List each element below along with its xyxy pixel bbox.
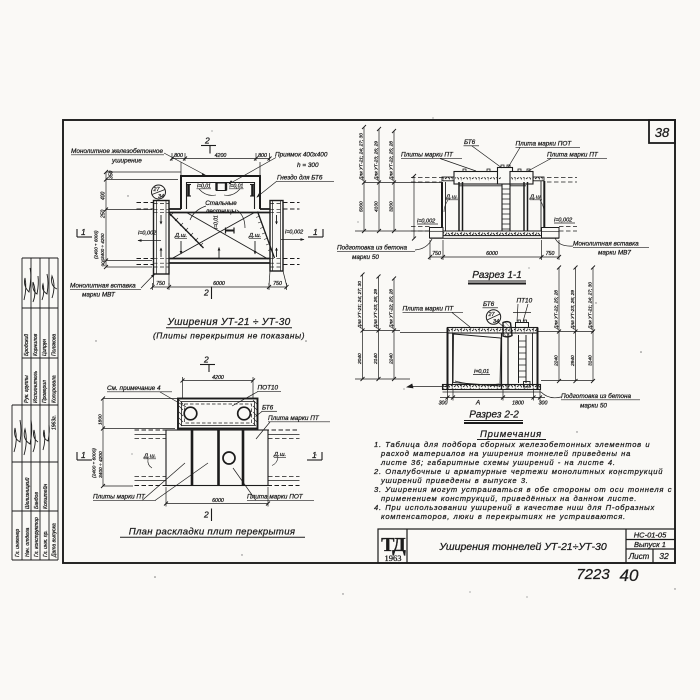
svg-text:6000: 6000 — [212, 498, 224, 504]
svg-text:Для УТ-21; 24; 27; 30: Для УТ-21; 24; 27; 30 — [359, 133, 365, 181]
svg-text:(2400 ÷ 6000): (2400 ÷ 6000) — [92, 448, 98, 478]
svg-text:Для УТ-23; 26; 29: Для УТ-23; 26; 29 — [374, 141, 380, 181]
svg-text:НС-01-05: НС-01-05 — [634, 531, 667, 540]
svg-text:расход материалов на уширен: расход материалов на уширения тоннелей п… — [380, 449, 631, 458]
svg-text:Рук. группы: Рук. группы — [24, 375, 30, 403]
svg-text:34: 34 — [493, 319, 499, 325]
svg-text:Уширения УТ-21 ÷ УТ-30: Уширения УТ-21 ÷ УТ-30 — [166, 317, 290, 328]
svg-text:Для УТ-21; 24; 27; 30: Для УТ-21; 24; 27; 30 — [588, 282, 594, 330]
svg-text:2: 2 — [203, 510, 209, 520]
svg-text:ПТ10: ПТ10 — [517, 298, 533, 305]
svg-text:Копштейн: Копштейн — [42, 484, 49, 509]
svg-text:32: 32 — [659, 551, 669, 561]
svg-text:Плиты марки ПТ: Плиты марки ПТ — [401, 152, 454, 159]
svg-text:2: 2 — [204, 136, 210, 146]
svg-text:Полякова: Полякова — [52, 334, 58, 356]
svg-text:i=0,01: i=0,01 — [214, 215, 220, 229]
svg-text:6000: 6000 — [213, 281, 225, 287]
svg-text:h = 300: h = 300 — [297, 162, 319, 169]
svg-text:ПОТ10: ПОТ10 — [258, 385, 279, 392]
svg-text:2240: 2240 — [554, 355, 560, 367]
svg-text:750: 750 — [546, 251, 555, 257]
svg-text:350: 350 — [109, 170, 115, 179]
svg-text:750: 750 — [432, 251, 441, 257]
svg-text:марки МВ7: марки МВ7 — [598, 250, 631, 257]
svg-text:1963: 1963 — [385, 553, 402, 563]
svg-text:БТ6: БТ6 — [483, 301, 495, 308]
svg-text:Нач. отдела: Нач. отдела — [25, 527, 31, 557]
svg-text:(Плиты перекрытия не показа: (Плиты перекрытия не показаны) — [153, 331, 305, 341]
svg-text:900: 900 — [101, 258, 106, 266]
svg-text:Лист: Лист — [628, 552, 650, 561]
svg-text:1: 1 — [81, 450, 86, 460]
svg-text:2940: 2940 — [570, 355, 576, 367]
svg-text:Копировала: Копировала — [52, 375, 58, 403]
svg-text:Дата выпуска: Дата выпуска — [52, 523, 58, 558]
svg-text:Гл. конструктор: Гл. конструктор — [34, 517, 40, 557]
svg-text:лестницы: лестницы — [205, 208, 237, 215]
svg-text:марки МВТ: марки МВТ — [82, 292, 116, 299]
svg-text:6000: 6000 — [486, 251, 498, 257]
svg-text:1800: 1800 — [98, 414, 104, 425]
svg-text:А: А — [475, 400, 480, 407]
svg-text:Гл. инж. пр.: Гл. инж. пр. — [43, 530, 49, 557]
svg-text:План раскладки плит перекры: План раскладки плит перекрытия — [129, 527, 296, 538]
svg-text:1800: 1800 — [512, 401, 524, 407]
svg-text:2240: 2240 — [389, 353, 395, 365]
svg-text:Гл. инженер: Гл. инженер — [15, 529, 21, 557]
svg-text:Стальные: Стальные — [205, 200, 237, 207]
svg-text:применением конструкций, при: применением конструкций, приведённых на … — [381, 494, 637, 503]
svg-text:Ципрун: Ципрун — [42, 339, 48, 356]
svg-text:800: 800 — [174, 153, 183, 159]
svg-text:Плиты марки ПТ: Плиты марки ПТ — [93, 494, 146, 501]
svg-text:3. Уширения могут устраивать: 3. Уширения могут устраиваться в обе сто… — [374, 485, 672, 494]
svg-text:Разрез 1-1: Разрез 1-1 — [472, 270, 522, 281]
svg-text:3140: 3140 — [588, 355, 594, 366]
svg-text:1963г.: 1963г. — [52, 415, 58, 430]
svg-text:Для УТ-22; 25; 28: Для УТ-22; 25; 28 — [554, 290, 560, 330]
svg-text:Монолитная вставка: Монолитная вставка — [70, 283, 136, 290]
svg-text:4. При использовании уширени: 4. При использовании уширений в качестве… — [374, 503, 656, 512]
svg-text:4100: 4100 — [374, 201, 380, 212]
svg-text:i=0,002: i=0,002 — [138, 231, 156, 237]
svg-text:марки 50: марки 50 — [580, 403, 607, 410]
svg-text:Разрез 2-2: Разрез 2-2 — [469, 410, 519, 421]
svg-text:Корнилов: Корнилов — [33, 333, 39, 356]
svg-text:34: 34 — [158, 194, 164, 200]
svg-text:300: 300 — [439, 401, 448, 407]
svg-text:Бродский: Бродский — [23, 334, 30, 356]
svg-text:27: 27 — [153, 187, 161, 193]
svg-text:Примечания: Примечания — [480, 429, 542, 440]
svg-text:Для УТ-23; 26; 29: Для УТ-23; 26; 29 — [570, 290, 576, 330]
svg-text:уширение: уширение — [111, 158, 142, 165]
svg-text:4200: 4200 — [215, 153, 227, 159]
svg-text:250: 250 — [101, 209, 107, 219]
svg-text:уширений приведены в выпуск: уширений приведены в выпуске 3. — [380, 476, 529, 485]
svg-text:3400 ÷ 4200: 3400 ÷ 4200 — [100, 233, 105, 259]
svg-text:750: 750 — [156, 281, 165, 287]
svg-text:1: 1 — [81, 227, 86, 237]
svg-text:БТ6: БТ6 — [464, 139, 476, 146]
svg-text:i=0,01: i=0,01 — [474, 369, 489, 375]
svg-text:4200: 4200 — [212, 375, 224, 381]
svg-text:Бандов: Бандов — [34, 492, 40, 509]
svg-text:Уширения тоннелей УТ-21÷УТ-30: Уширения тоннелей УТ-21÷УТ-30 — [438, 541, 607, 553]
svg-text:2. Опалубочные и арматурные: 2. Опалубочные и арматурные чертежи моно… — [373, 467, 663, 476]
svg-text:7223: 7223 — [576, 566, 610, 583]
svg-text:См. примечание 4: См. примечание 4 — [107, 385, 161, 392]
svg-text:Подготовка из бетона: Подготовка из бетона — [337, 244, 408, 252]
svg-text:(2400 ÷ 6000): (2400 ÷ 6000) — [94, 230, 99, 259]
svg-text:Плита марки ПОТ: Плита марки ПОТ — [516, 141, 573, 148]
svg-text:Для УТ-22; 25; 28: Для УТ-22; 25; 28 — [389, 289, 395, 329]
svg-text:40: 40 — [620, 566, 639, 585]
svg-text:2140: 2140 — [373, 353, 379, 365]
svg-text:Для УТ-22; 25; 28: Для УТ-22; 25; 28 — [389, 141, 395, 181]
svg-text:27: 27 — [488, 312, 496, 318]
svg-text:Гнездо для БТ6: Гнездо для БТ6 — [277, 174, 323, 182]
svg-text:Исполнитель: Исполнитель — [33, 371, 39, 403]
svg-text:1: 1 — [312, 450, 317, 460]
svg-text:38: 38 — [655, 125, 670, 140]
svg-text:Выпуск 1: Выпуск 1 — [634, 540, 666, 549]
svg-text:марки 50: марки 50 — [352, 254, 379, 261]
svg-text:Монолитное железобетонное: Монолитное железобетонное — [71, 147, 163, 155]
svg-text:Плита марки ПТ: Плита марки ПТ — [403, 306, 455, 313]
svg-text:Для УТ-21; 24; 27; 30: Для УТ-21; 24; 27; 30 — [357, 281, 363, 329]
svg-text:Для УТ-23; 26; 29: Для УТ-23; 26; 29 — [373, 289, 379, 329]
svg-text:i=0,002: i=0,002 — [285, 230, 303, 236]
svg-text:компенсаторов, люки в перек: компенсаторов, люки в перекрытиях не уст… — [381, 512, 626, 521]
svg-text:2040: 2040 — [357, 353, 363, 365]
svg-text:5000: 5000 — [359, 201, 365, 212]
svg-text:Проверил: Проверил — [42, 380, 48, 403]
svg-text:Приямок 400х400: Приямок 400х400 — [275, 152, 328, 159]
svg-text:800: 800 — [258, 153, 267, 159]
svg-text:750: 750 — [273, 281, 282, 287]
svg-text:2: 2 — [203, 355, 209, 365]
svg-text:400: 400 — [101, 191, 107, 200]
svg-text:2: 2 — [203, 288, 209, 298]
svg-text:Монолитная вставка: Монолитная вставка — [573, 241, 639, 248]
svg-text:листе 36; габаритные схемы: листе 36; габаритные схемы уширений - на… — [380, 458, 616, 467]
svg-text:300: 300 — [539, 401, 548, 407]
svg-text:Плита марки ПТ: Плита марки ПТ — [547, 152, 599, 159]
svg-text:1. Таблица для подбора сбор: 1. Таблица для подбора сборных железобет… — [374, 440, 650, 449]
svg-text:1: 1 — [313, 227, 318, 237]
svg-text:БТ6: БТ6 — [262, 405, 274, 412]
svg-text:3200: 3200 — [389, 201, 395, 212]
svg-text:Плита марки ПТ: Плита марки ПТ — [268, 415, 320, 422]
svg-text:Подготовка из бетона: Подготовка из бетона — [561, 392, 632, 400]
svg-text:3400 ÷ 4200: 3400 ÷ 4200 — [98, 451, 104, 478]
svg-text:Шелизницкий: Шелизницкий — [24, 477, 31, 509]
